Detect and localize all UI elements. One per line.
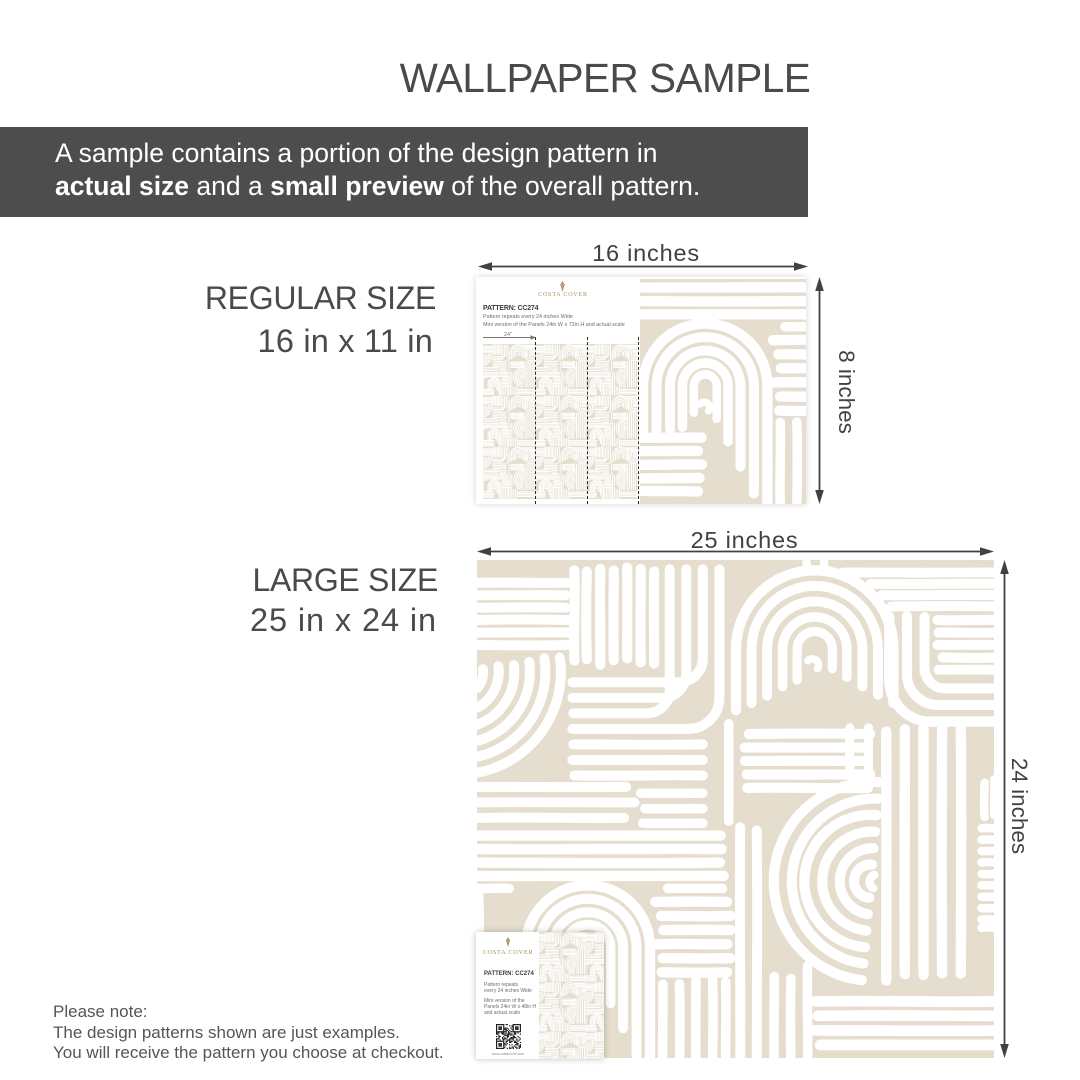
svg-text:24": 24" xyxy=(504,332,512,338)
svg-text:www.costacover.com: www.costacover.com xyxy=(492,1052,525,1056)
